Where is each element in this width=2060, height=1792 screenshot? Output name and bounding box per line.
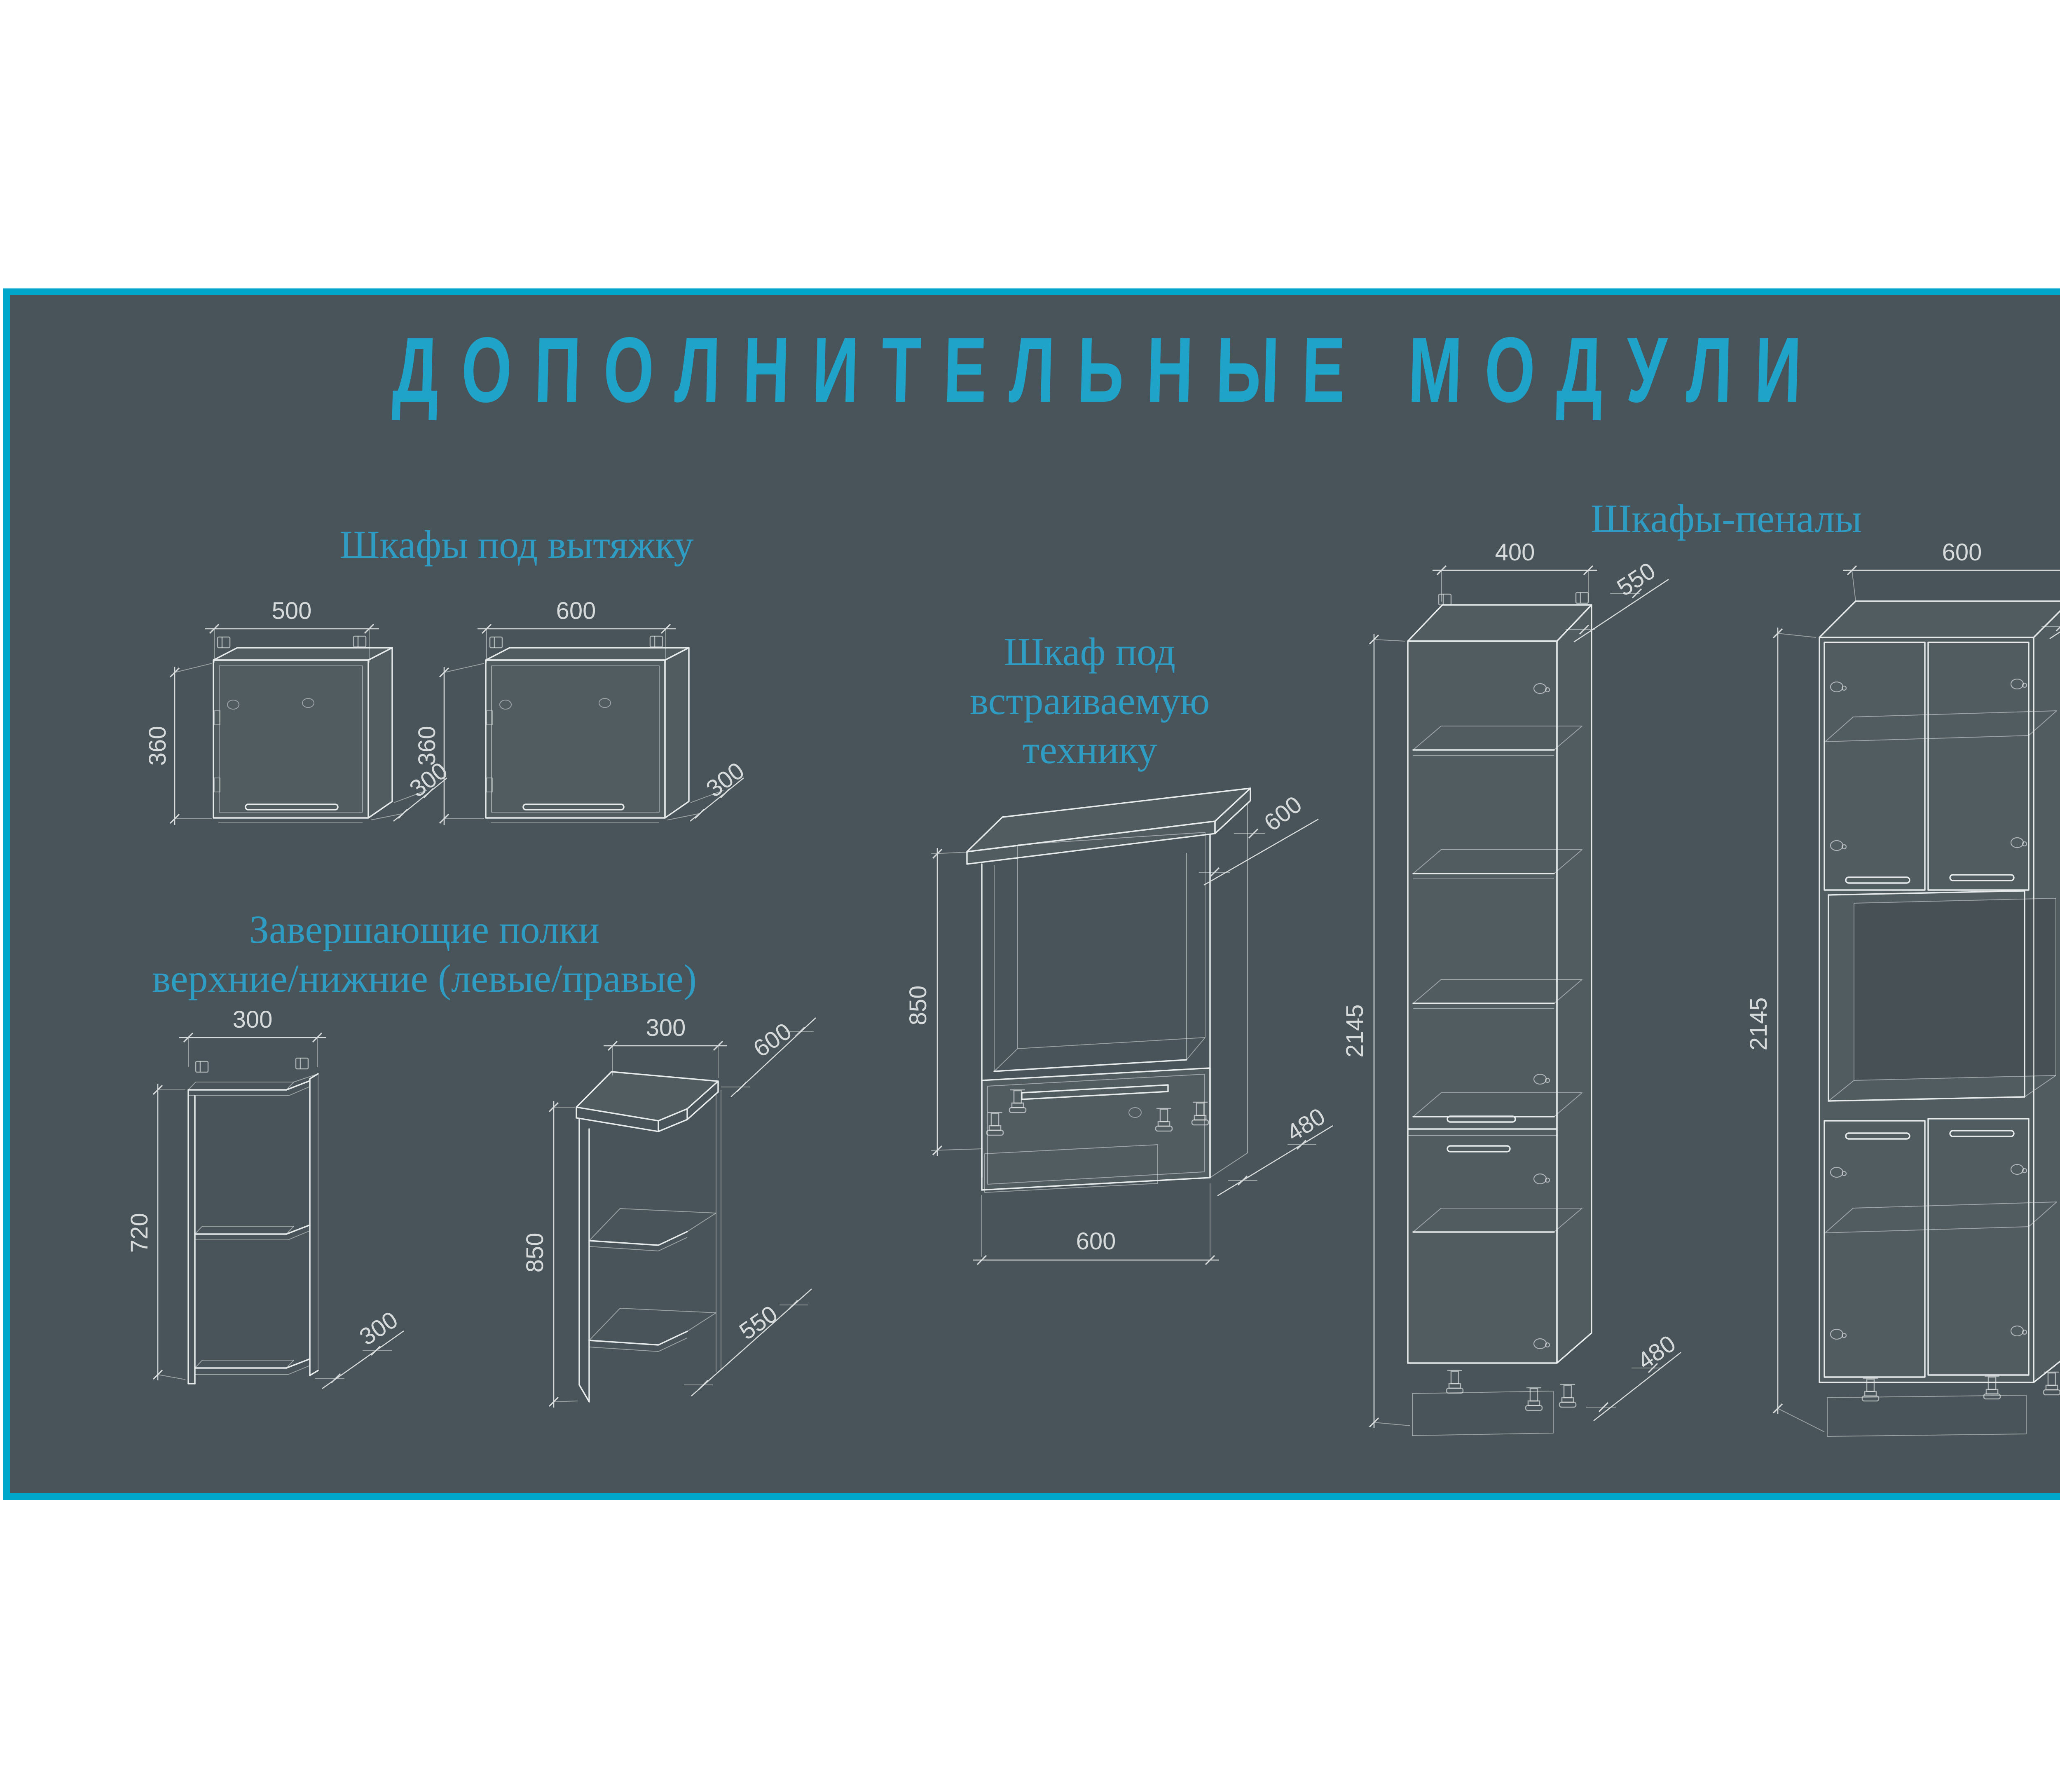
svg-text:360: 360 <box>414 726 440 766</box>
dim-height: 360 <box>414 663 484 825</box>
svg-text:300: 300 <box>355 1306 403 1351</box>
plinth-board <box>1827 1395 2026 1436</box>
dim-width: 600 <box>1843 539 2060 601</box>
wall-bracket-icon <box>490 637 502 648</box>
dim-height: 2145 <box>1745 628 1824 1432</box>
svg-text:600: 600 <box>556 597 596 624</box>
dim-depth: 300 <box>315 1306 404 1389</box>
drawing-tall-cabinet-600: 600 2145 550 480 <box>1722 548 2060 1467</box>
heading-line: технику <box>884 725 1296 774</box>
hood-600-cabinet-body <box>486 636 689 823</box>
heading-line: Завершающие полки <box>74 905 775 954</box>
svg-text:480: 480 <box>1282 1103 1330 1146</box>
dim-height: 720 <box>126 1084 185 1380</box>
drawer-front <box>982 1068 1210 1190</box>
countertop-board <box>576 1072 718 1131</box>
wall-bracket-icon <box>650 636 662 647</box>
svg-text:720: 720 <box>126 1213 153 1253</box>
oven-niche <box>994 832 1205 1071</box>
heading-line: Шкаф под <box>884 627 1296 676</box>
section-heading-built-in: Шкаф под встраиваемую технику <box>884 627 1296 774</box>
section-heading-end-shelves: Завершающие полки верхние/нижние (левые/… <box>74 905 775 1003</box>
drawing-oven-cabinet: 850 600 480 600 <box>898 783 1343 1310</box>
drawing-end-shelf-lower: 300 850 600 550 <box>486 989 849 1417</box>
dim-depth-bottom: 480 <box>1217 1103 1333 1196</box>
leg-accent-icon <box>2044 1372 2060 1395</box>
plinth-board <box>1412 1391 1553 1436</box>
svg-text:600: 600 <box>749 1018 797 1063</box>
shelf-upper-body <box>188 1058 318 1384</box>
wall-bracket-icon <box>218 637 230 648</box>
dim-height: 850 <box>522 1101 578 1408</box>
tall-600-body <box>1819 601 2060 1436</box>
dim-width: 300 <box>604 1014 727 1078</box>
dim-height: 850 <box>905 848 983 1156</box>
wall-bracket-icon <box>296 1058 308 1069</box>
shelf-board <box>195 1225 310 1240</box>
section-heading-tall: Шкафы-пеналы <box>1417 494 2035 543</box>
wall-bracket-icon <box>353 636 366 647</box>
dim-height: 2145 <box>1341 634 1410 1428</box>
shelf-board <box>589 1209 716 1251</box>
dim-width: 400 <box>1433 539 1597 602</box>
shelf-board <box>188 1074 318 1096</box>
wall-bracket-icon <box>1576 593 1588 603</box>
svg-text:850: 850 <box>522 1233 548 1273</box>
dim-width: 600 <box>973 1183 1219 1265</box>
dim-depth-bottom: 550 <box>684 1289 812 1396</box>
drawing-tall-cabinet-400: 400 2145 550 480 <box>1343 548 1706 1467</box>
leg-accent-icon <box>1559 1384 1576 1407</box>
svg-text:300: 300 <box>233 1006 273 1033</box>
catalog-page: { "title": "ДОПОЛНИТЕЛЬНЫЕ МОДУЛИ", "col… <box>0 0 2060 1792</box>
tall-400-body <box>1408 593 1592 1436</box>
svg-text:550: 550 <box>1612 557 1660 601</box>
heading-line: встраиваемую <box>884 676 1296 725</box>
svg-text:300: 300 <box>646 1014 686 1041</box>
svg-text:600: 600 <box>1942 539 1982 566</box>
svg-text:600: 600 <box>1076 1228 1116 1255</box>
section-heading-hood: Шкафы под вытяжку <box>187 520 846 569</box>
wall-bracket-icon <box>1439 594 1451 605</box>
hood-500-cabinet-body <box>213 636 392 823</box>
oven-niche <box>1828 891 2056 1101</box>
dim-depth-bottom: 480 <box>1586 1330 1681 1421</box>
shelf-board <box>589 1308 716 1352</box>
svg-text:2145: 2145 <box>1341 1004 1368 1057</box>
oven-cabinet-body <box>967 788 1250 1192</box>
drawing-end-shelf-upper: 300 720 300 <box>132 1005 453 1409</box>
svg-text:2145: 2145 <box>1745 997 1772 1050</box>
leg-icon <box>1447 1370 1463 1393</box>
shelf-lower-body <box>576 1072 721 1402</box>
wall-bracket-icon <box>196 1061 208 1072</box>
svg-text:360: 360 <box>144 726 171 766</box>
shelf-board <box>195 1359 310 1375</box>
drawing-hood-cabinet-600: 600 360 300 <box>420 593 783 849</box>
svg-text:550: 550 <box>735 1300 783 1345</box>
svg-text:400: 400 <box>1495 539 1535 566</box>
page-title: ДОПОЛНИТЕЛЬНЫЕ МОДУЛИ <box>310 293 1906 447</box>
dim-depth-top: 600 <box>721 1018 816 1097</box>
svg-text:500: 500 <box>272 597 312 624</box>
svg-text:850: 850 <box>905 986 932 1026</box>
